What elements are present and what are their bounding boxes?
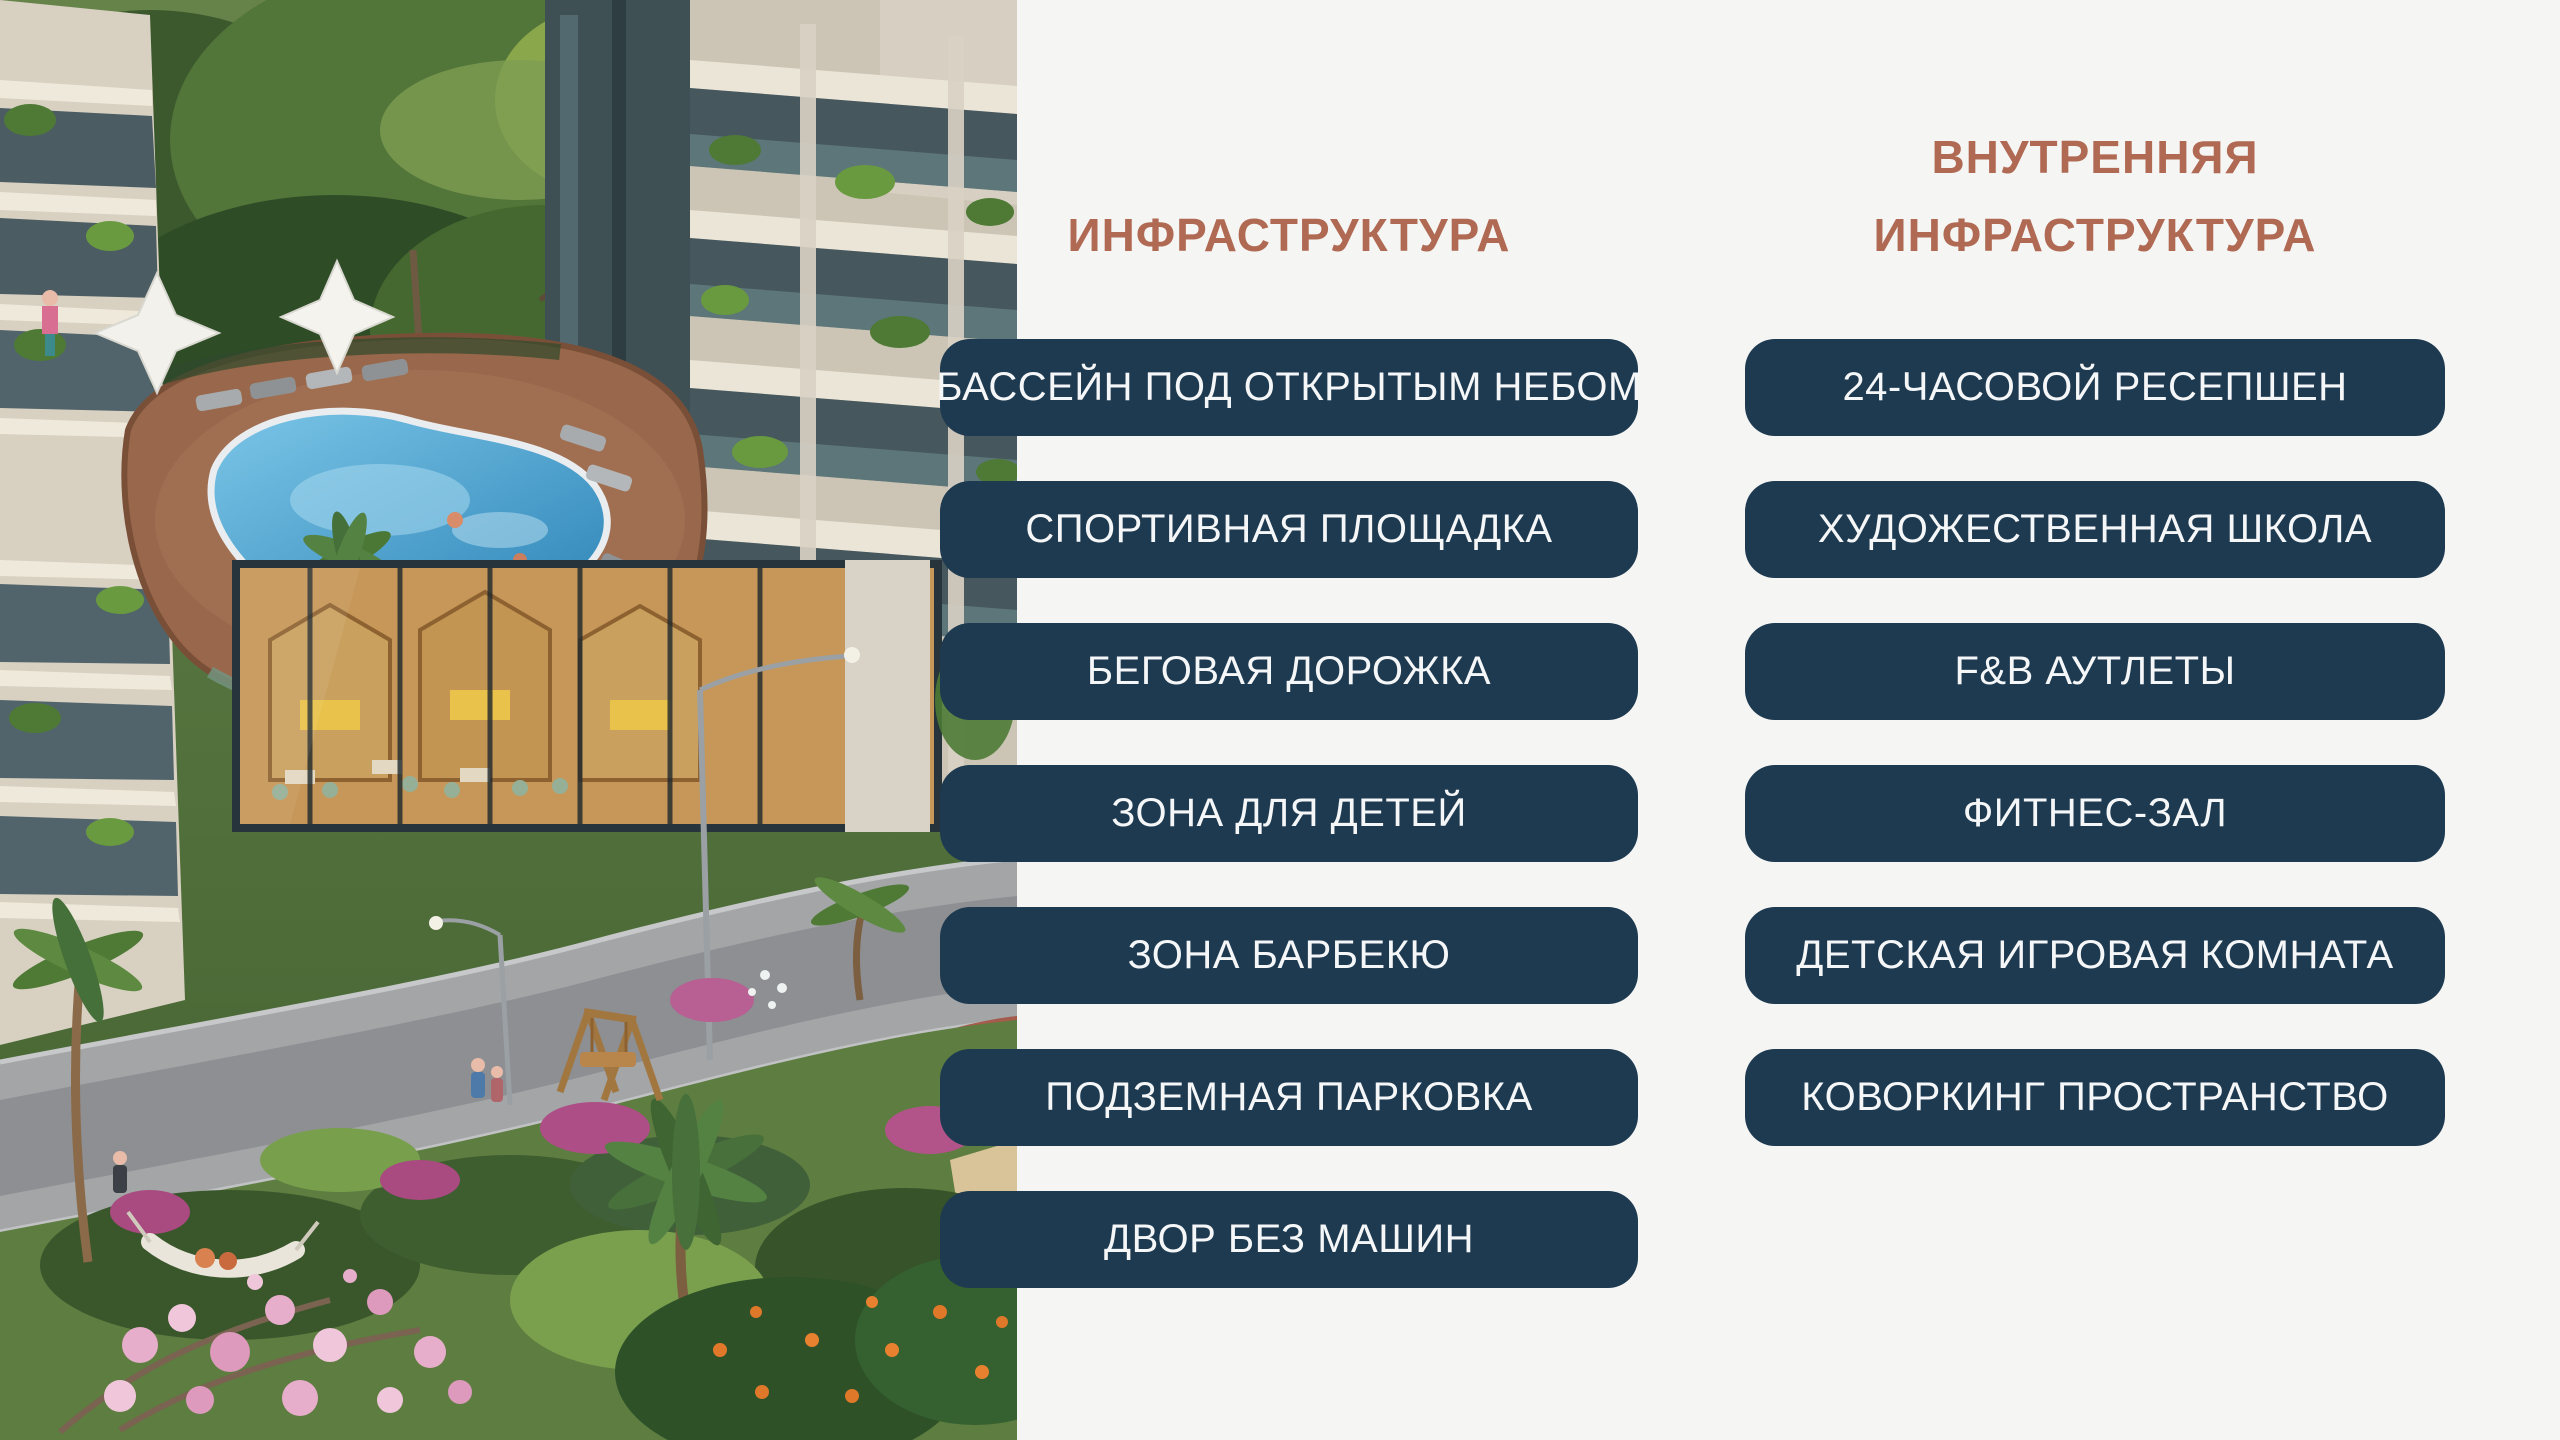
indoor-infrastructure-title: ВНУТРЕННЯЯИНФРАСТРУКТУРА bbox=[1745, 118, 2445, 274]
infrastructure-item-pill: 24-ЧАСОВОЙ РЕСЕПШЕН bbox=[1745, 339, 2445, 436]
infrastructure-item-pill: БАССЕЙН ПОД ОТКРЫТЫМ НЕБОМ bbox=[940, 339, 1638, 436]
infrastructure-item-pill: ЗОНА БАРБЕКЮ bbox=[940, 907, 1638, 1004]
infrastructure-item-pill: ПОДЗЕМНАЯ ПАРКОВКА bbox=[940, 1049, 1638, 1146]
balcony-person bbox=[42, 290, 58, 306]
column-title-line: ВНУТРЕННЯЯ bbox=[1745, 118, 2445, 196]
outdoor-infrastructure-list: БАССЕЙН ПОД ОТКРЫТЫМ НЕБОМСПОРТИВНАЯ ПЛО… bbox=[940, 339, 1638, 1288]
infrastructure-item-pill: ЗОНА ДЛЯ ДЕТЕЙ bbox=[940, 765, 1638, 862]
outdoor-infrastructure-title: ИНФРАСТРУКТУРА bbox=[940, 196, 1638, 274]
infrastructure-item-pill: ДВОР БЕЗ МАШИН bbox=[940, 1191, 1638, 1288]
column-title-line: ИНФРАСТРУКТУРА bbox=[1745, 196, 2445, 274]
complex-render-photo bbox=[0, 0, 1017, 1440]
complex-render-illustration bbox=[0, 0, 1017, 1440]
infrastructure-item-pill: БЕГОВАЯ ДОРОЖКА bbox=[940, 623, 1638, 720]
infrastructure-item-pill: ФИТНЕС-ЗАЛ bbox=[1745, 765, 2445, 862]
column-title-line: ИНФРАСТРУКТУРА bbox=[940, 196, 1638, 274]
infrastructure-item-pill: F&B АУТЛЕТЫ bbox=[1745, 623, 2445, 720]
indoor-infrastructure-list: 24-ЧАСОВОЙ РЕСЕПШЕНХУДОЖЕСТВЕННАЯ ШКОЛАF… bbox=[1745, 339, 2445, 1146]
infrastructure-item-pill: СПОРТИВНАЯ ПЛОЩАДКА bbox=[940, 481, 1638, 578]
infrastructure-item-pill: КОВОРКИНГ ПРОСТРАНСТВО bbox=[1745, 1049, 2445, 1146]
infrastructure-item-pill: ДЕТСКАЯ ИГРОВАЯ КОМНАТА bbox=[1745, 907, 2445, 1004]
glass-restaurant bbox=[232, 560, 1015, 832]
infrastructure-item-pill: ХУДОЖЕСТВЕННАЯ ШКОЛА bbox=[1745, 481, 2445, 578]
